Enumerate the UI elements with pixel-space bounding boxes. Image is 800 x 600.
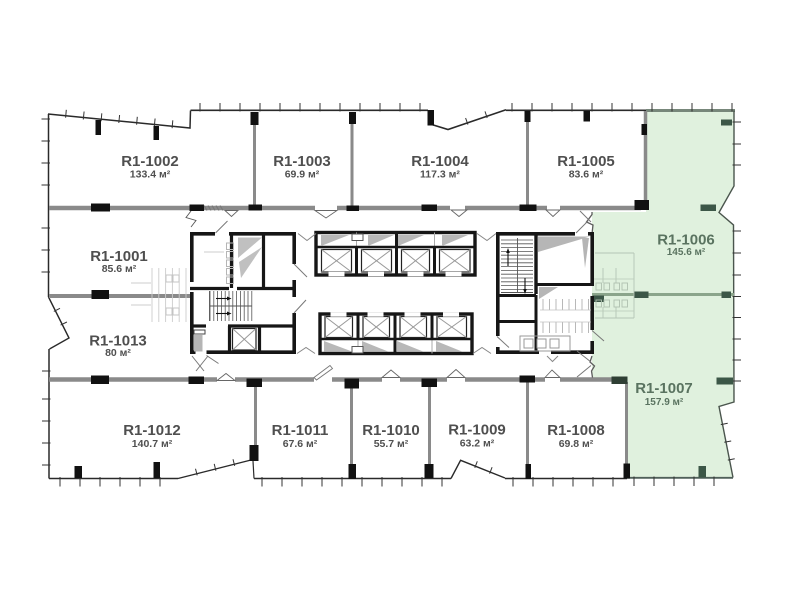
- svg-text:55.7 м²: 55.7 м²: [374, 438, 409, 450]
- svg-text:R1-1005: R1-1005: [557, 153, 615, 170]
- svg-text:R1-1011: R1-1011: [272, 422, 329, 439]
- svg-text:69.8 м²: 69.8 м²: [559, 438, 594, 450]
- svg-text:145.6 м²: 145.6 м²: [667, 247, 706, 258]
- svg-text:R1-1003: R1-1003: [273, 153, 331, 170]
- svg-text:R1-1007: R1-1007: [635, 380, 693, 397]
- svg-text:R1-1006: R1-1006: [657, 232, 715, 249]
- svg-text:R1-1002: R1-1002: [121, 153, 179, 170]
- svg-text:R1-1012: R1-1012: [123, 422, 181, 439]
- svg-text:R1-1004: R1-1004: [411, 153, 469, 170]
- svg-text:R1-1008: R1-1008: [547, 422, 605, 439]
- svg-text:157.9 м²: 157.9 м²: [645, 397, 684, 408]
- svg-text:R1-1010: R1-1010: [362, 422, 420, 439]
- svg-text:67.6 м²: 67.6 м²: [283, 438, 318, 450]
- svg-text:83.6 м²: 83.6 м²: [569, 169, 604, 181]
- svg-text:69.9 м²: 69.9 м²: [285, 169, 320, 181]
- svg-text:R1-1009: R1-1009: [448, 422, 506, 439]
- svg-text:63.2 м²: 63.2 м²: [460, 438, 495, 450]
- svg-text:117.3 м²: 117.3 м²: [420, 169, 460, 181]
- svg-text:80 м²: 80 м²: [105, 347, 131, 359]
- svg-text:140.7 м²: 140.7 м²: [132, 438, 173, 450]
- svg-text:85.6 м²: 85.6 м²: [102, 263, 137, 275]
- svg-text:133.4 м²: 133.4 м²: [130, 169, 171, 181]
